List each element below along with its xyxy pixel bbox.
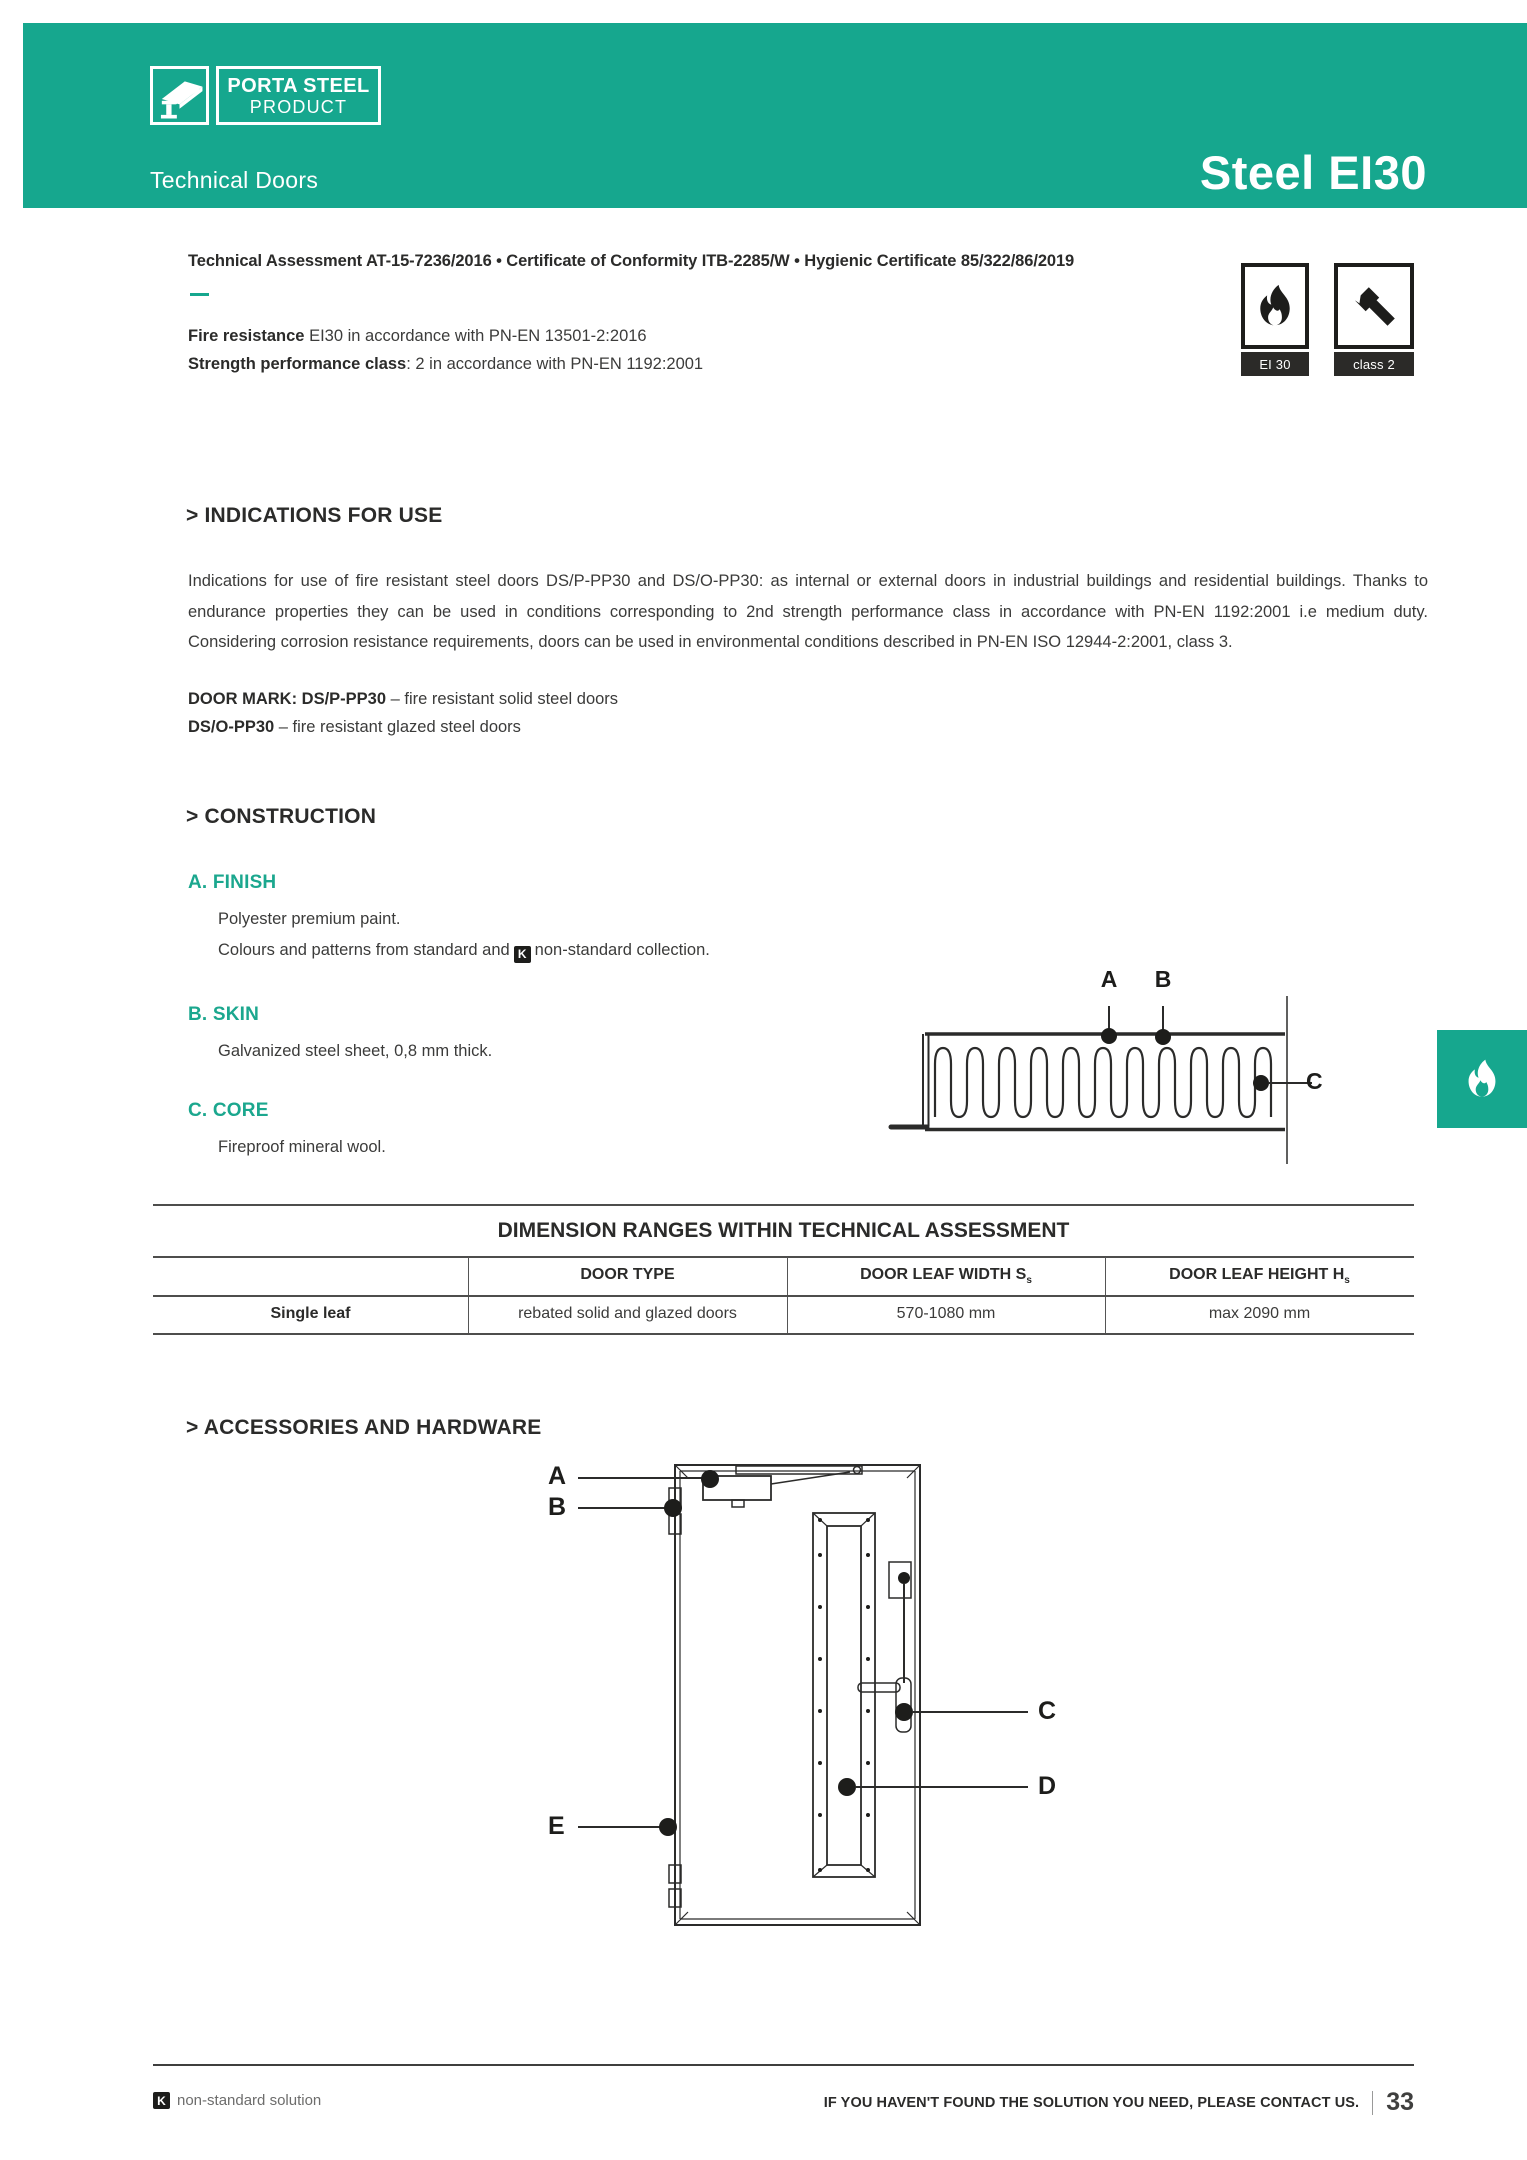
fire-icon: [1252, 280, 1298, 332]
leaf-height-subscript: s: [1344, 1275, 1350, 1286]
finish-line2-suffix: non-standard collection.: [535, 941, 710, 959]
xsection-label-c: C: [1306, 1068, 1332, 1095]
k-brand-icon: K: [514, 946, 531, 963]
document-page: PORTA STEEL PRODUCT Technical Doors Stee…: [0, 0, 1527, 2160]
k-brand-icon: K: [153, 2092, 170, 2109]
fire-section-tab: [1437, 1030, 1527, 1128]
door-label-a: A: [548, 1462, 574, 1491]
table-header-door-type: DOOR TYPE: [468, 1266, 787, 1284]
finish-line2-prefix: Colours and patterns from standard and: [218, 941, 510, 959]
table-title: DIMENSION RANGES WITHIN TECHNICAL ASSESS…: [153, 1219, 1414, 1243]
footer-contact-text: IF YOU HAVEN'T FOUND THE SOLUTION YOU NE…: [824, 2095, 1359, 2111]
hammer-icon: [1348, 280, 1400, 332]
finish-label: A. FINISH: [188, 872, 276, 894]
door-label-d: D: [1038, 1772, 1064, 1801]
table-cell-leaf: Single leaf: [153, 1305, 468, 1323]
door-label-b: B: [548, 1493, 574, 1522]
fire-resistance-value: EI30 in accordance with PN-EN 13501-2:20…: [304, 327, 646, 345]
leaf-height-text: DOOR LEAF HEIGHT H: [1169, 1266, 1344, 1283]
strength-class-badge: [1334, 263, 1414, 349]
table-rule-bottom: [153, 1333, 1414, 1335]
table-cell-width: 570-1080 mm: [787, 1305, 1105, 1323]
steel-beam-icon: [153, 69, 206, 122]
core-line: Fireproof mineral wool.: [218, 1138, 386, 1157]
footer-divider: [1372, 2091, 1373, 2115]
flame-icon: [1461, 1054, 1503, 1104]
indications-heading: > INDICATIONS FOR USE: [186, 504, 442, 528]
skin-label: B. SKIN: [188, 1004, 259, 1026]
page-number: 33: [1386, 2088, 1414, 2117]
fire-resistance-label: Fire resistance: [188, 327, 304, 345]
door-hardware-diagram: [540, 1440, 1060, 1940]
accent-dash: [190, 293, 209, 296]
footer-left-text: non-standard solution: [177, 2092, 321, 2109]
brand-name: PORTA STEEL: [227, 75, 369, 97]
indications-paragraph: Indications for use of fire resistant st…: [188, 566, 1428, 658]
finish-line2: Colours and patterns from standard andKn…: [218, 941, 710, 963]
fire-rating-label: EI 30: [1241, 352, 1309, 376]
xsection-label-b: B: [1150, 966, 1176, 993]
door-label-e: E: [548, 1812, 574, 1841]
strength-class-line: Strength performance class: 2 in accorda…: [188, 355, 703, 374]
skin-line: Galvanized steel sheet, 0,8 mm thick.: [218, 1042, 492, 1061]
xsection-label-a: A: [1096, 966, 1122, 993]
leaf-width-text: DOOR LEAF WIDTH S: [860, 1266, 1026, 1283]
door-mark-code: DOOR MARK: DS/P-PP30: [188, 690, 386, 708]
table-cell-height: max 2090 mm: [1105, 1305, 1414, 1323]
door-mark-desc: – fire resistant solid steel doors: [386, 690, 618, 708]
porta-logo-box: [150, 66, 209, 125]
footer-right: IF YOU HAVEN'T FOUND THE SOLUTION YOU NE…: [824, 2088, 1414, 2117]
header-subtitle: Technical Doors: [150, 167, 318, 194]
glazing-screws: [818, 1518, 870, 1872]
porta-brand-box: PORTA STEEL PRODUCT: [216, 66, 381, 125]
footer-rule: [153, 2064, 1414, 2066]
table-rule-3: [153, 1295, 1414, 1297]
core-label: C. CORE: [188, 1100, 269, 1122]
table-rule-2: [153, 1256, 1414, 1258]
fire-rating-badge: [1241, 263, 1309, 349]
header-band: PORTA STEEL PRODUCT Technical Doors Stee…: [23, 23, 1527, 208]
leaf-width-subscript: s: [1026, 1275, 1032, 1286]
strength-class-value: : 2 in accordance with PN-EN 1192:2001: [406, 355, 703, 373]
table-header-leaf-height: DOOR LEAF HEIGHT Hs: [1105, 1266, 1414, 1286]
finish-line1: Polyester premium paint.: [218, 910, 401, 929]
door-mark2-desc: – fire resistant glazed steel doors: [274, 718, 521, 736]
fire-resistance-line: Fire resistance EI30 in accordance with …: [188, 327, 647, 346]
footer-left: K non-standard solution: [153, 2092, 321, 2109]
strength-class-label: Strength performance class: [188, 355, 406, 373]
page-title: Steel EI30: [1200, 145, 1427, 200]
table-rule-top: [153, 1204, 1414, 1206]
brand-subname: PRODUCT: [250, 97, 347, 117]
door-mark-line-2: DS/O-PP30 – fire resistant glazed steel …: [188, 718, 521, 737]
strength-class-badge-label: class 2: [1334, 352, 1414, 376]
table-cell-door-type: rebated solid and glazed doors: [468, 1305, 787, 1323]
certificates-line: Technical Assessment AT-15-7236/2016 • C…: [188, 252, 1074, 271]
table-header-leaf-width: DOOR LEAF WIDTH Ss: [787, 1266, 1105, 1286]
door-label-c: C: [1038, 1697, 1064, 1726]
accessories-heading: > ACCESSORIES AND HARDWARE: [186, 1416, 541, 1440]
construction-heading: > CONSTRUCTION: [186, 805, 376, 829]
door-mark-line-1: DOOR MARK: DS/P-PP30 – fire resistant so…: [188, 690, 618, 709]
door-mark2-code: DS/O-PP30: [188, 718, 274, 736]
door-cross-section-diagram: [870, 960, 1340, 1180]
